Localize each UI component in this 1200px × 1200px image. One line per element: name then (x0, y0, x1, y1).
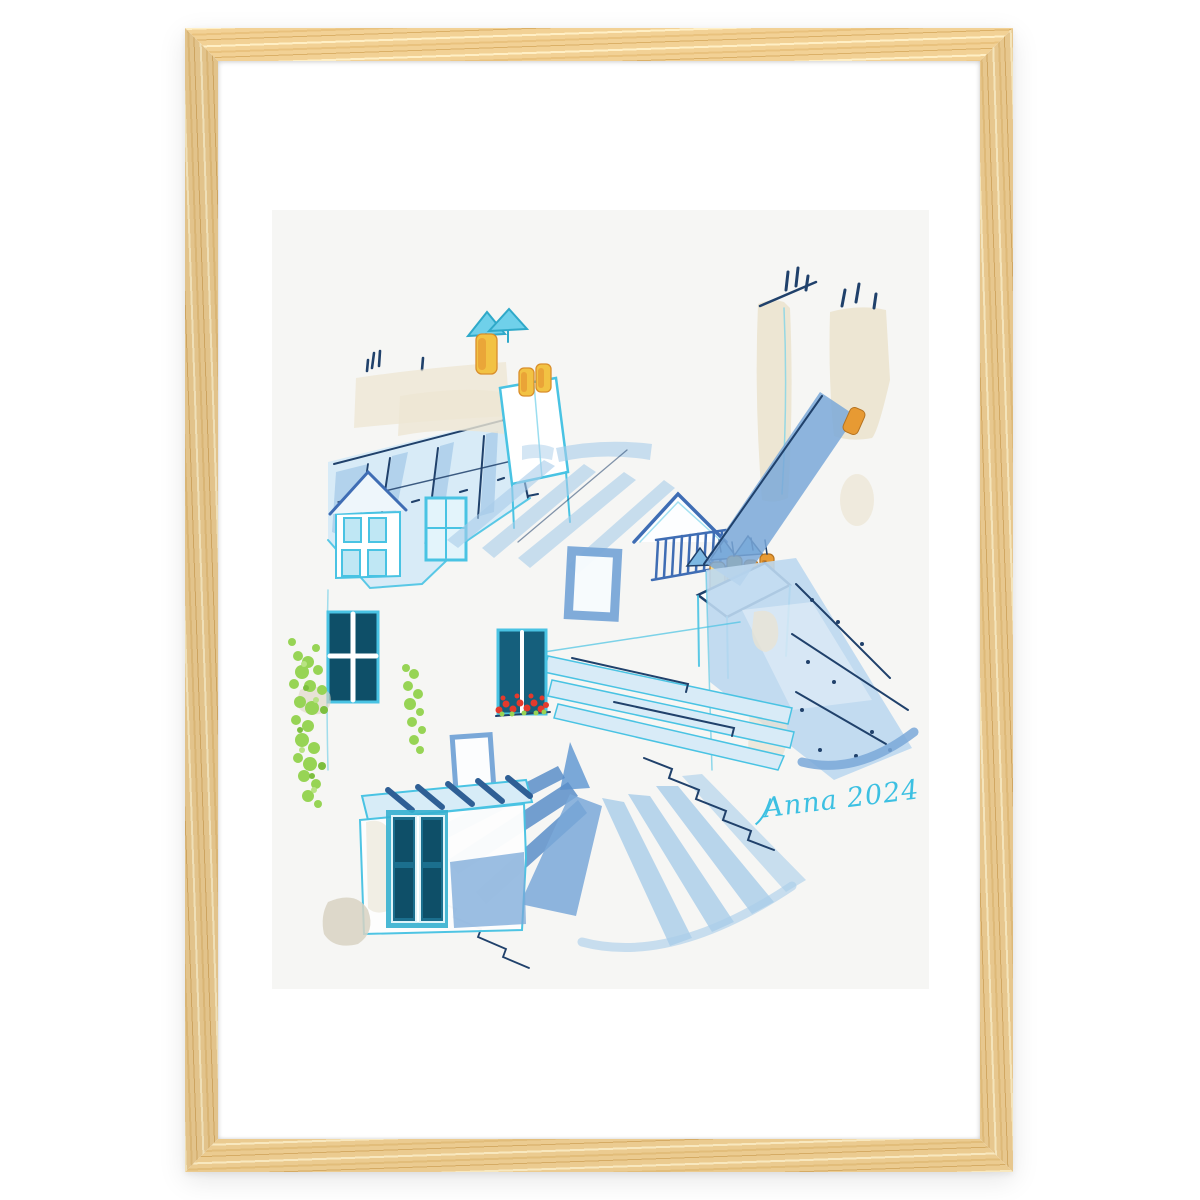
door-house (323, 778, 532, 946)
chimney-stack (500, 378, 568, 484)
antenna-icon (367, 351, 423, 371)
teal-french-doors (386, 810, 448, 928)
artist-signature: Anna 2024 (752, 774, 921, 825)
antenna-icon (842, 284, 876, 308)
climbing-vine (288, 638, 328, 808)
roof-hatch (452, 735, 494, 792)
teal-window (328, 612, 378, 702)
grey-wash-blob (323, 898, 371, 946)
svg-text:Anna 2024: Anna 2024 (759, 774, 921, 824)
cyan-roof-window (426, 498, 466, 560)
picture-frame: Anna 2024 (185, 28, 1013, 1172)
skylight (568, 551, 617, 617)
climbing-vine-small (402, 664, 426, 754)
framed-print-photo: Anna 2024 (0, 0, 1200, 1200)
art-print-paper: Anna 2024 (272, 210, 929, 989)
cream-wall-patch (398, 390, 504, 436)
rooftops-watercolor: Anna 2024 (272, 210, 929, 989)
hip-apex (560, 742, 590, 790)
left-house-facade (288, 612, 550, 946)
white-mat: Anna 2024 (218, 61, 980, 1139)
geranium-window (496, 630, 551, 717)
